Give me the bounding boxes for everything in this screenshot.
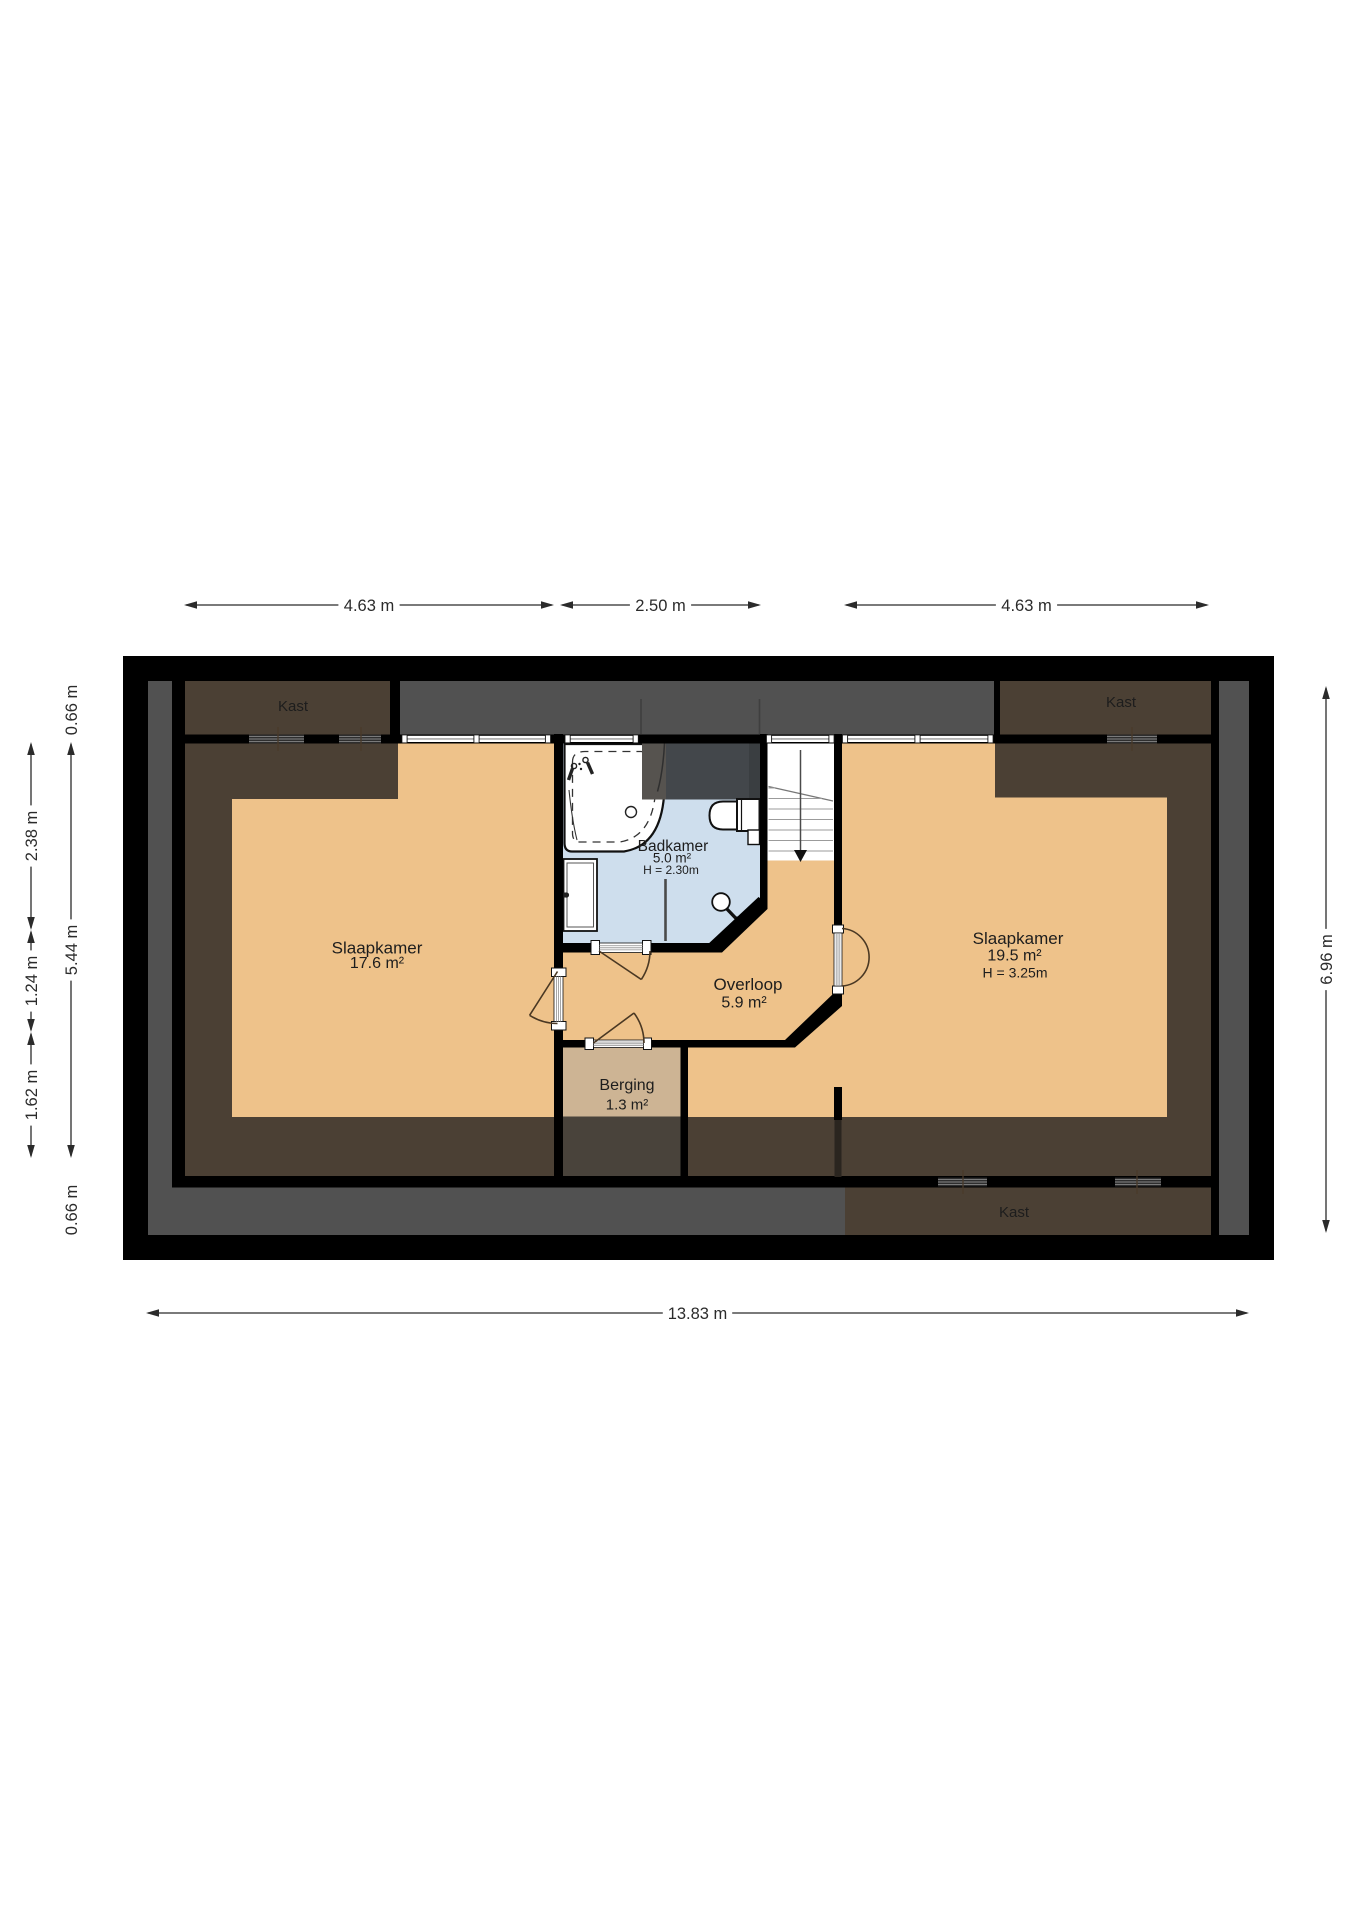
svg-text:H = 3.25m: H = 3.25m xyxy=(983,965,1048,981)
svg-text:Berging: Berging xyxy=(599,1077,654,1094)
svg-text:Slaapkamer: Slaapkamer xyxy=(973,929,1064,948)
svg-text:0.66 m: 0.66 m xyxy=(63,1185,81,1235)
svg-text:6.96 m: 6.96 m xyxy=(1318,934,1336,984)
svg-text:2.38 m: 2.38 m xyxy=(23,811,41,861)
svg-text:H = 2.30m: H = 2.30m xyxy=(643,863,699,877)
svg-text:1.3 m²: 1.3 m² xyxy=(606,1097,649,1114)
svg-text:5.44 m: 5.44 m xyxy=(63,925,81,975)
svg-text:19.5 m²: 19.5 m² xyxy=(987,948,1042,965)
svg-text:5.9 m²: 5.9 m² xyxy=(721,995,767,1012)
svg-text:17.6 m²: 17.6 m² xyxy=(350,955,405,972)
svg-text:4.63 m: 4.63 m xyxy=(1001,597,1051,615)
svg-text:Overloop: Overloop xyxy=(714,975,783,994)
svg-text:4.63 m: 4.63 m xyxy=(344,597,394,615)
svg-text:0.66 m: 0.66 m xyxy=(63,685,81,735)
svg-text:13.83 m: 13.83 m xyxy=(668,1305,728,1323)
svg-text:2.50 m: 2.50 m xyxy=(635,597,685,615)
svg-text:Kast: Kast xyxy=(278,698,309,715)
svg-text:Kast: Kast xyxy=(1106,694,1137,711)
svg-text:1.62 m: 1.62 m xyxy=(23,1070,41,1120)
svg-text:1.24 m: 1.24 m xyxy=(23,956,41,1006)
svg-text:Kast: Kast xyxy=(999,1204,1030,1221)
